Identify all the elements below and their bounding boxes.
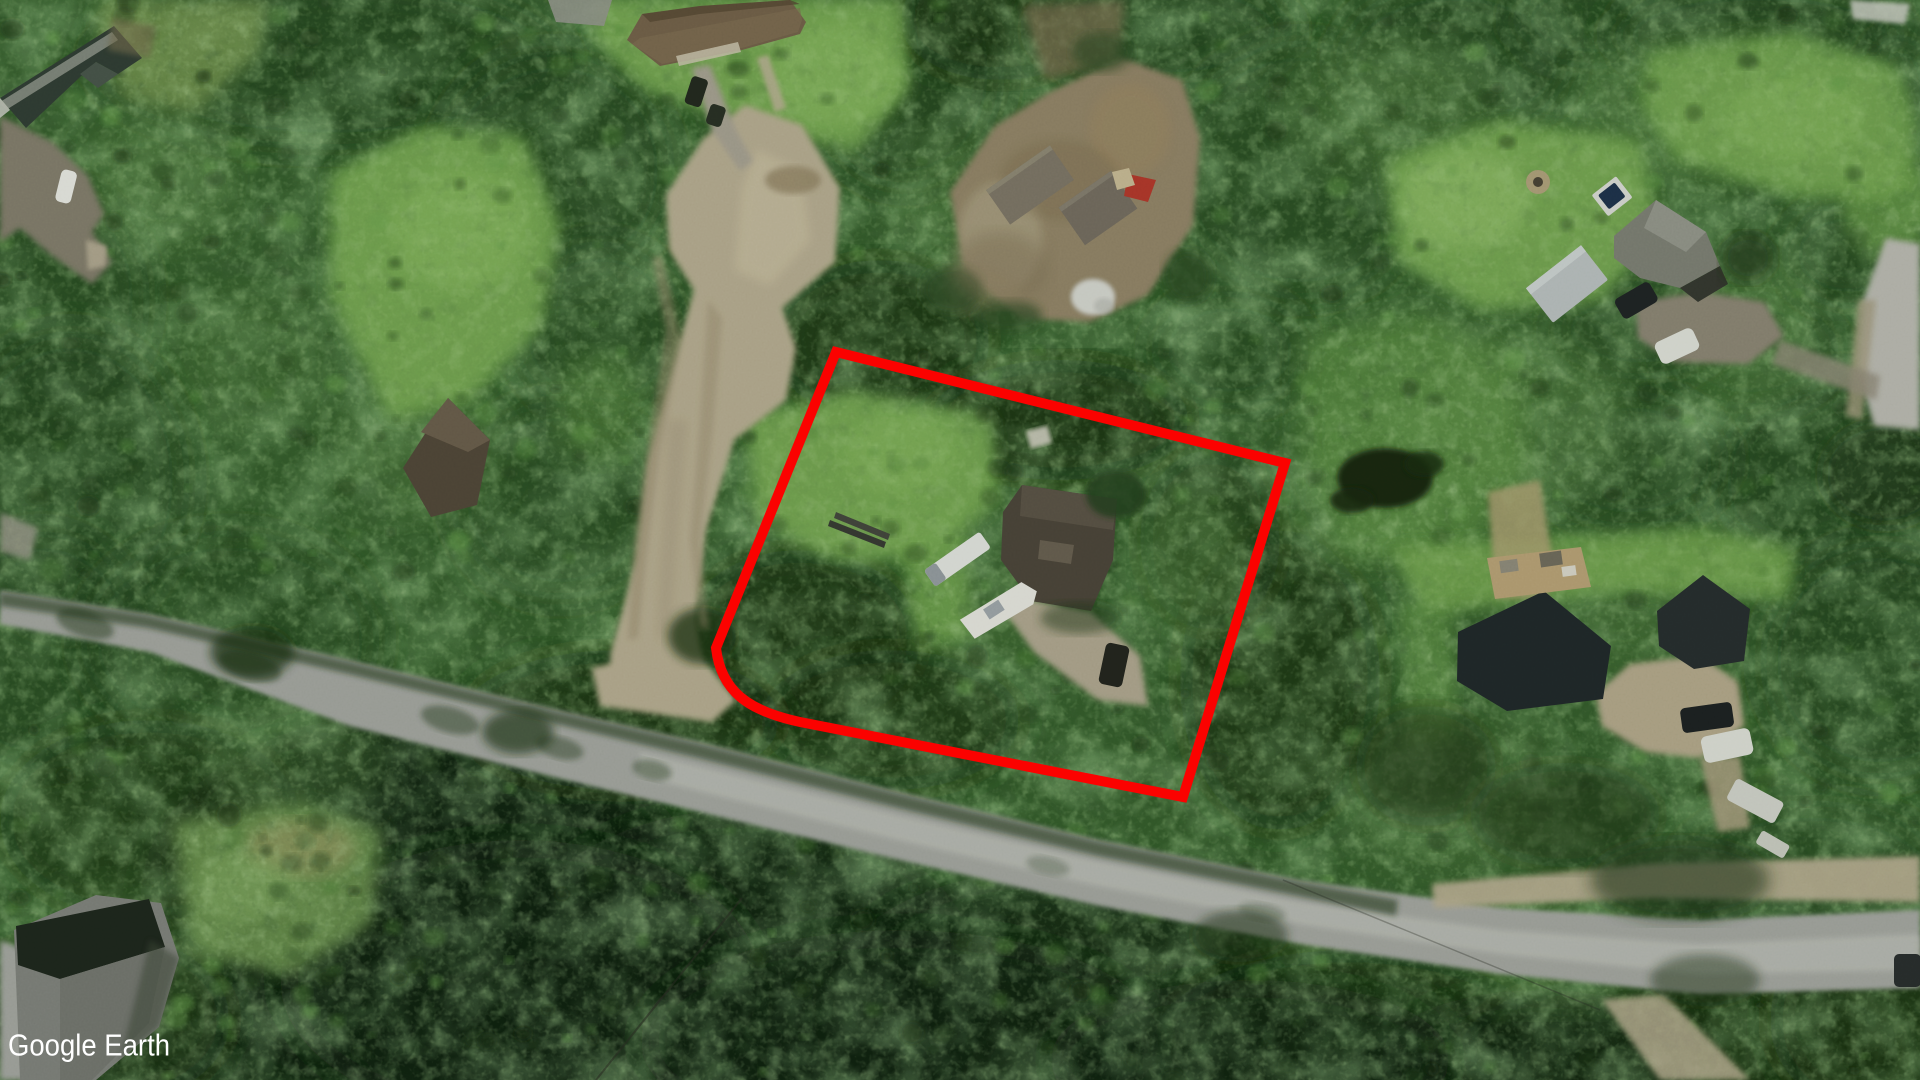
svg-text:Google Earth: Google Earth: [8, 1028, 170, 1063]
